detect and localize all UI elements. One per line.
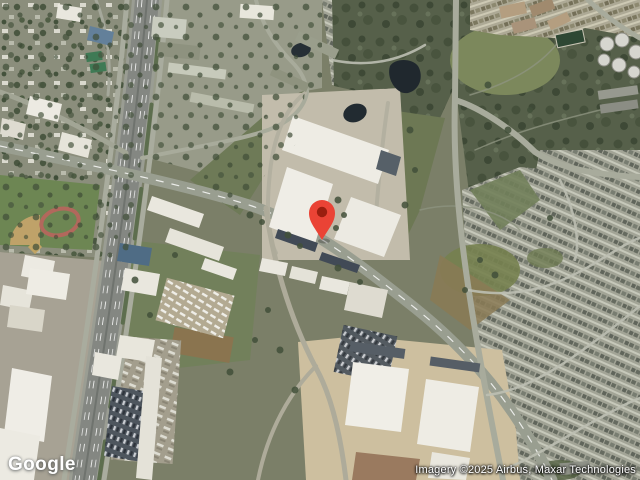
map-canvas[interactable]: Google Imagery ©2025 Airbus, Maxar Techn…: [0, 0, 640, 480]
marker-shadow: [318, 239, 330, 244]
imagery-attribution: Imagery ©2025 Airbus, Maxar Technologies: [415, 464, 636, 476]
satellite-imagery: [0, 0, 640, 480]
marker-dot: [317, 207, 327, 217]
google-logo[interactable]: Google: [8, 454, 76, 476]
